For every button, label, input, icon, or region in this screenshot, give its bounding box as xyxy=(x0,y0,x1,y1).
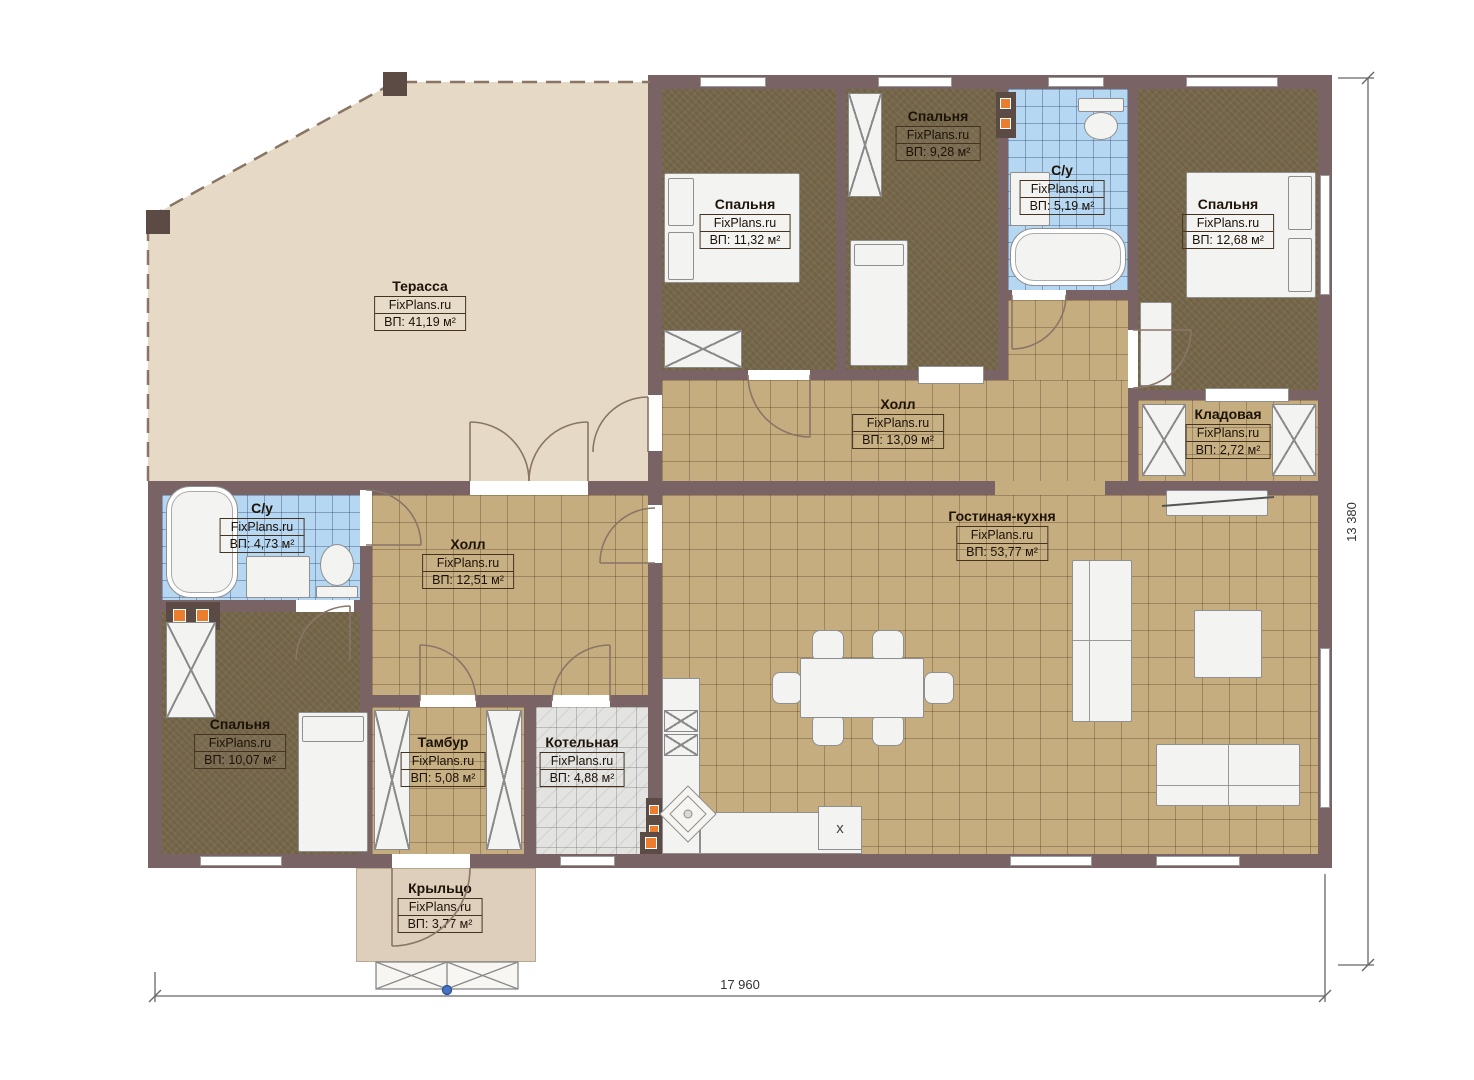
dresser xyxy=(1140,302,1172,386)
floor-hall-1-ext xyxy=(1008,300,1128,380)
window xyxy=(1156,856,1240,866)
room-area: ВП: 2,72 м² xyxy=(1187,442,1270,458)
window xyxy=(700,77,766,87)
label-vestibule: Тамбур FixPlans.ru ВП: 5,08 м² xyxy=(401,734,486,787)
wardrobe xyxy=(166,622,216,718)
sliding-door-bedroom-2 xyxy=(918,366,984,384)
pillow xyxy=(1288,176,1312,230)
label-bathroom-1: С/у FixPlans.ru ВП: 5,19 м² xyxy=(1020,162,1105,215)
room-area: ВП: 10,07 м² xyxy=(195,752,285,768)
chair xyxy=(872,714,904,746)
room-name: Тамбур xyxy=(401,734,486,750)
label-porch: Крыльцо FixPlans.ru ВП: 3,77 м² xyxy=(398,880,483,933)
room-area: ВП: 4,73 м² xyxy=(221,536,304,552)
room-area: ВП: 9,28 м² xyxy=(897,144,980,160)
wall xyxy=(372,695,662,707)
sofa xyxy=(1072,560,1132,722)
pillow xyxy=(854,244,904,266)
stove-label: x xyxy=(836,820,844,837)
chair xyxy=(812,714,844,746)
door-gap-bathroom-1 xyxy=(1012,290,1066,300)
porch-steps xyxy=(376,962,518,995)
window xyxy=(1010,856,1092,866)
label-boiler-room: Котельная FixPlans.ru ВП: 4,88 м² xyxy=(540,734,625,787)
door-gap-vestibule xyxy=(420,695,476,707)
room-name: Спальня xyxy=(194,716,286,732)
wall xyxy=(1128,89,1138,495)
brand-watermark: FixPlans.ru xyxy=(541,753,624,770)
wall xyxy=(148,481,162,868)
brand-watermark: FixPlans.ru xyxy=(897,127,980,144)
wall xyxy=(148,481,1332,495)
tv-stand xyxy=(1166,490,1268,516)
flue-box xyxy=(640,832,662,854)
room-name: Спальня xyxy=(700,196,791,212)
label-bedroom-4: Спальня FixPlans.ru ВП: 10,07 м² xyxy=(194,716,286,769)
room-name: Холл xyxy=(422,536,514,552)
passage-hall-living xyxy=(995,481,1105,495)
wall xyxy=(148,854,1332,868)
brand-watermark: FixPlans.ru xyxy=(1187,425,1270,442)
room-area: ВП: 53,77 м² xyxy=(957,544,1047,560)
room-area: ВП: 12,68 м² xyxy=(1183,232,1273,248)
wardrobe xyxy=(1272,404,1316,476)
wardrobe xyxy=(1142,404,1186,476)
pillow xyxy=(668,178,694,226)
step-marker xyxy=(443,986,452,995)
vent-box xyxy=(996,92,1016,138)
floor-hall-2 xyxy=(372,495,648,695)
brand-watermark: FixPlans.ru xyxy=(221,519,304,536)
room-name: Гостиная-кухня xyxy=(948,508,1055,524)
window xyxy=(1048,77,1104,87)
room-name: С/у xyxy=(220,500,305,516)
room-area: ВП: 5,08 м² xyxy=(402,770,485,786)
kitchen-counter xyxy=(662,678,700,854)
label-hall-1: Холл FixPlans.ru ВП: 13,09 м² xyxy=(852,396,944,449)
room-area: ВП: 41,19 м² xyxy=(375,314,465,330)
wall xyxy=(836,89,846,380)
stove-box: x xyxy=(818,806,862,850)
room-area: ВП: 3,77 м² xyxy=(399,916,482,932)
door-gap-boiler xyxy=(552,695,610,707)
sofa xyxy=(1156,744,1300,806)
door-gap-entry xyxy=(392,854,470,868)
toilet-tank xyxy=(316,586,358,598)
brand-watermark: FixPlans.ru xyxy=(1183,215,1273,232)
label-living-kitchen: Гостиная-кухня FixPlans.ru ВП: 53,77 м² xyxy=(948,508,1055,561)
room-name: Кладовая xyxy=(1186,406,1271,422)
vanity-sink xyxy=(246,556,310,598)
door-gap-terrace-french xyxy=(470,481,588,495)
coffee-table xyxy=(1194,610,1262,678)
door-gap-bedroom-1 xyxy=(748,370,810,380)
room-name: Спальня xyxy=(896,108,981,124)
pillow xyxy=(668,232,694,280)
window xyxy=(878,77,952,87)
brand-watermark: FixPlans.ru xyxy=(957,527,1047,544)
bathtub xyxy=(1010,228,1126,286)
door-gap-living xyxy=(648,505,662,563)
brand-watermark: FixPlans.ru xyxy=(195,735,285,752)
wall xyxy=(524,707,536,854)
toilet-bowl xyxy=(1084,112,1118,140)
room-name: Крыльцо xyxy=(398,880,483,896)
brand-watermark: FixPlans.ru xyxy=(701,215,790,232)
hob-burners xyxy=(664,734,698,756)
room-area: ВП: 13,09 м² xyxy=(853,432,943,448)
door-gap-bedroom-4 xyxy=(296,600,354,612)
window xyxy=(560,856,615,866)
dining-table xyxy=(800,658,924,718)
window xyxy=(200,856,282,866)
label-bathroom-2: С/у FixPlans.ru ВП: 4,73 м² xyxy=(220,500,305,553)
room-area: ВП: 4,88 м² xyxy=(541,770,624,786)
dimension-height: 13 380 xyxy=(1344,502,1359,542)
brand-watermark: FixPlans.ru xyxy=(399,899,482,916)
door-gap-bedroom-3 xyxy=(1128,330,1138,388)
pillow xyxy=(1288,238,1312,292)
brand-watermark: FixPlans.ru xyxy=(375,297,465,314)
toilet-tank xyxy=(1078,98,1124,112)
wardrobe xyxy=(848,93,882,197)
label-hall-2: Холл FixPlans.ru ВП: 12,51 м² xyxy=(422,536,514,589)
chair xyxy=(924,672,954,704)
label-terrace: Терасса FixPlans.ru ВП: 41,19 м² xyxy=(374,278,466,331)
room-name: Спальня xyxy=(1182,196,1274,212)
sliding-door-storage xyxy=(1205,388,1289,402)
room-area: ВП: 5,19 м² xyxy=(1021,198,1104,214)
room-name: Котельная xyxy=(540,734,625,750)
room-area: ВП: 11,32 м² xyxy=(701,232,790,248)
room-name: С/у xyxy=(1020,162,1105,178)
room-name: Терасса xyxy=(374,278,466,294)
floor-plan: x Терасса FixPlans.ru ВП: 41,19 м² Спаль… xyxy=(0,0,1474,1080)
brand-watermark: FixPlans.ru xyxy=(1021,181,1104,198)
brand-watermark: FixPlans.ru xyxy=(423,555,513,572)
wardrobe xyxy=(664,330,742,368)
label-storage: Кладовая FixPlans.ru ВП: 2,72 м² xyxy=(1186,406,1271,459)
label-bedroom-3: Спальня FixPlans.ru ВП: 12,68 м² xyxy=(1182,196,1274,249)
hob-burners xyxy=(664,710,698,732)
room-name: Холл xyxy=(852,396,944,412)
toilet-bowl xyxy=(320,544,354,586)
chair xyxy=(772,672,802,704)
pillow xyxy=(302,716,364,742)
brand-watermark: FixPlans.ru xyxy=(853,415,943,432)
brand-watermark: FixPlans.ru xyxy=(402,753,485,770)
window xyxy=(1320,175,1330,295)
door-gap-terrace-hall xyxy=(648,395,662,451)
room-area: ВП: 12,51 м² xyxy=(423,572,513,588)
wardrobe xyxy=(486,710,522,850)
window xyxy=(1186,77,1278,87)
label-bedroom-2: Спальня FixPlans.ru ВП: 9,28 м² xyxy=(896,108,981,161)
label-bedroom-1: Спальня FixPlans.ru ВП: 11,32 м² xyxy=(700,196,791,249)
door-gap-bathroom-2 xyxy=(360,490,372,546)
dimension-width: 17 960 xyxy=(720,977,760,992)
window xyxy=(1320,648,1330,808)
